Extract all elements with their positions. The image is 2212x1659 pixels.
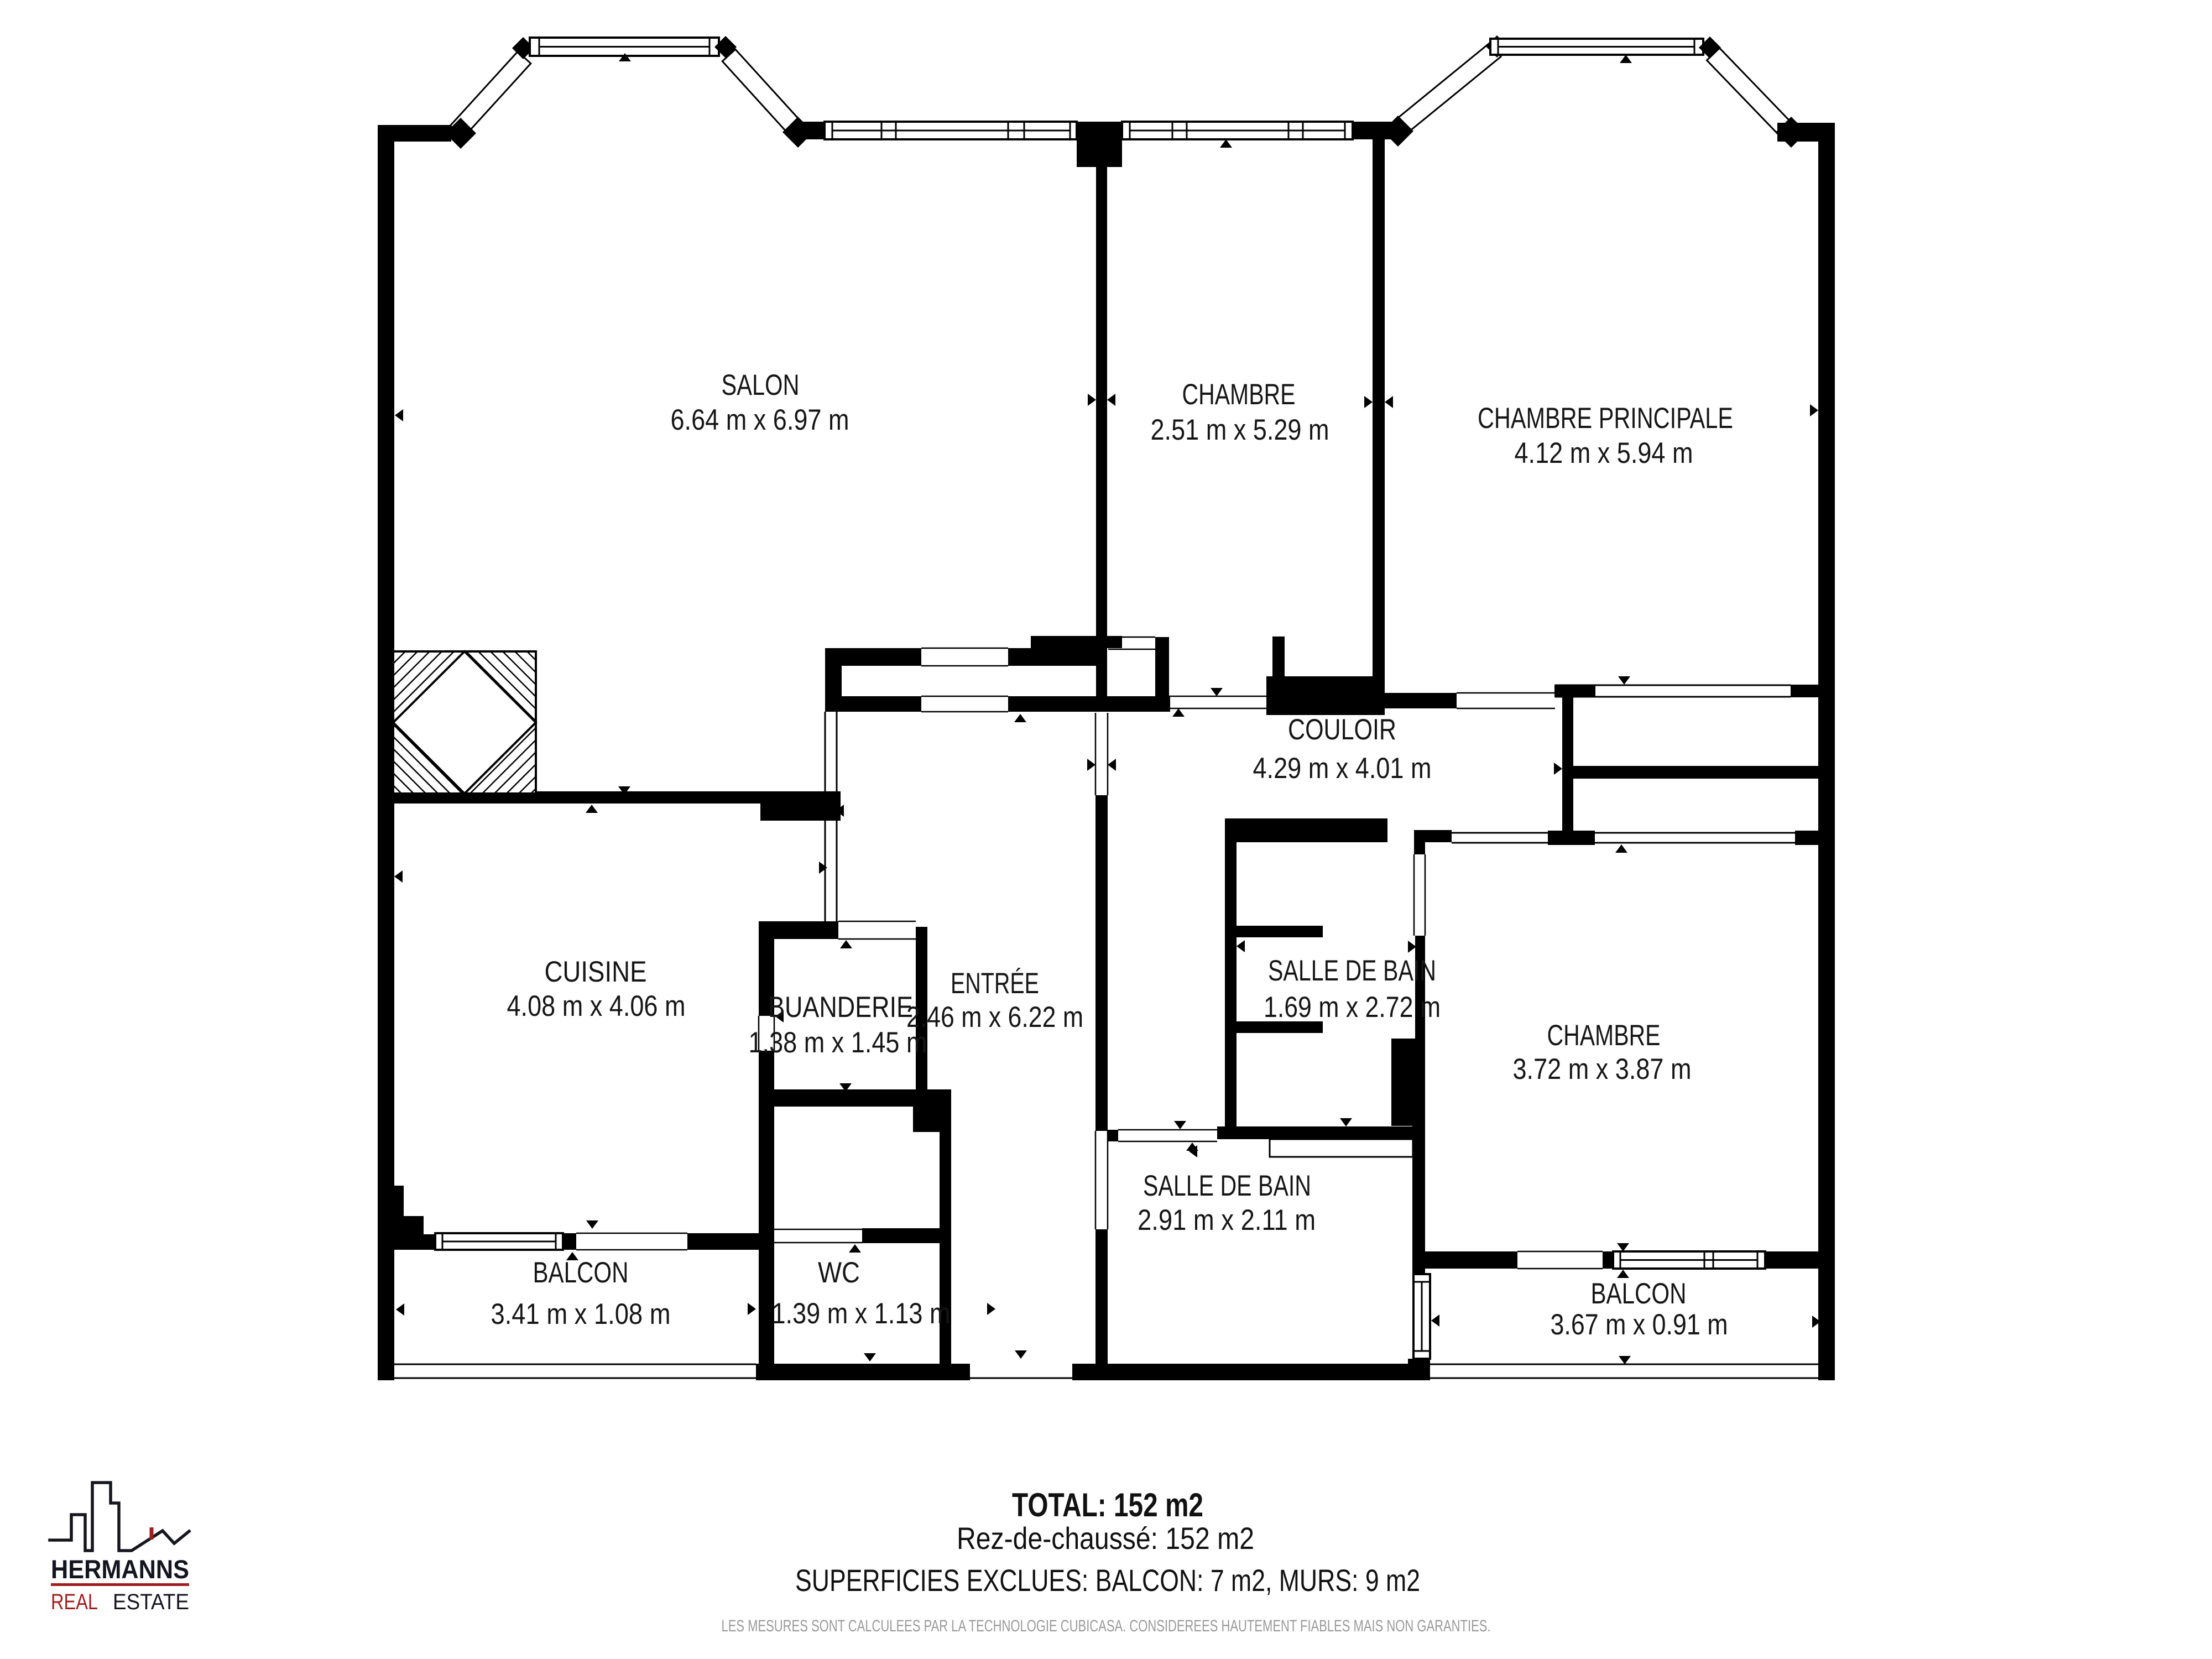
- svg-text:Rez-de-chaussé: 152 m2: Rez-de-chaussé: 152 m2: [957, 1521, 1254, 1556]
- svg-text:1.69 m x 2.72 m: 1.69 m x 2.72 m: [1264, 991, 1441, 1024]
- svg-text:4.12 m x 5.94 m: 4.12 m x 5.94 m: [1515, 437, 1693, 469]
- svg-text:CHAMBRE PRINCIPALE: CHAMBRE PRINCIPALE: [1478, 402, 1733, 435]
- svg-text:3.41 m x 1.08 m: 3.41 m x 1.08 m: [491, 1298, 671, 1331]
- svg-text:1.38 m x 1.45 m: 1.38 m x 1.45 m: [749, 1026, 927, 1059]
- svg-text:COULOIR: COULOIR: [1288, 713, 1396, 746]
- svg-text:3.67 m x 0.91 m: 3.67 m x 0.91 m: [1551, 1308, 1728, 1341]
- svg-text:HERMANNS: HERMANNS: [51, 1554, 189, 1584]
- svg-text:CUISINE: CUISINE: [545, 956, 647, 988]
- svg-text:BUANDERIE: BUANDERIE: [768, 991, 913, 1024]
- svg-text:2.46 m x 6.22 m: 2.46 m x 6.22 m: [906, 1001, 1083, 1034]
- svg-text:CHAMBRE: CHAMBRE: [1547, 1019, 1661, 1052]
- svg-text:WC: WC: [818, 1256, 860, 1289]
- svg-text:BALCON: BALCON: [533, 1256, 629, 1289]
- svg-text:2.91 m x 2.11 m: 2.91 m x 2.11 m: [1138, 1204, 1316, 1237]
- svg-text:ENTRÉE: ENTRÉE: [951, 967, 1039, 1000]
- svg-text:4.08 m x 4.06 m: 4.08 m x 4.06 m: [507, 990, 686, 1022]
- svg-text:3.72 m x 3.87 m: 3.72 m x 3.87 m: [1513, 1053, 1692, 1086]
- svg-text:SALLE DE BAIN: SALLE DE BAIN: [1143, 1170, 1311, 1202]
- svg-text:SUPERFICIES EXCLUES: BALCON: 7: SUPERFICIES EXCLUES: BALCON: 7 m2, MURS:…: [795, 1563, 1420, 1598]
- svg-text:LES MESURES SONT CALCULEES PAR: LES MESURES SONT CALCULEES PAR LA TECHNO…: [722, 1617, 1491, 1635]
- svg-text:SALON: SALON: [722, 369, 800, 401]
- svg-text:BALCON: BALCON: [1591, 1277, 1687, 1310]
- svg-text:REAL: REAL: [51, 1590, 98, 1614]
- svg-text:SALLE DE BAIN: SALLE DE BAIN: [1268, 954, 1436, 987]
- svg-text:ESTATE: ESTATE: [113, 1590, 189, 1614]
- svg-text:CHAMBRE: CHAMBRE: [1182, 378, 1296, 411]
- svg-text:2.51 m x 5.29 m: 2.51 m x 5.29 m: [1151, 414, 1329, 446]
- svg-text:TOTAL: 152 m2: TOTAL: 152 m2: [1012, 1486, 1203, 1524]
- svg-text:6.64 m x 6.97 m: 6.64 m x 6.97 m: [671, 404, 849, 436]
- svg-text:1.39 m x 1.13 m: 1.39 m x 1.13 m: [772, 1297, 951, 1330]
- svg-text:4.29 m x 4.01 m: 4.29 m x 4.01 m: [1253, 752, 1432, 785]
